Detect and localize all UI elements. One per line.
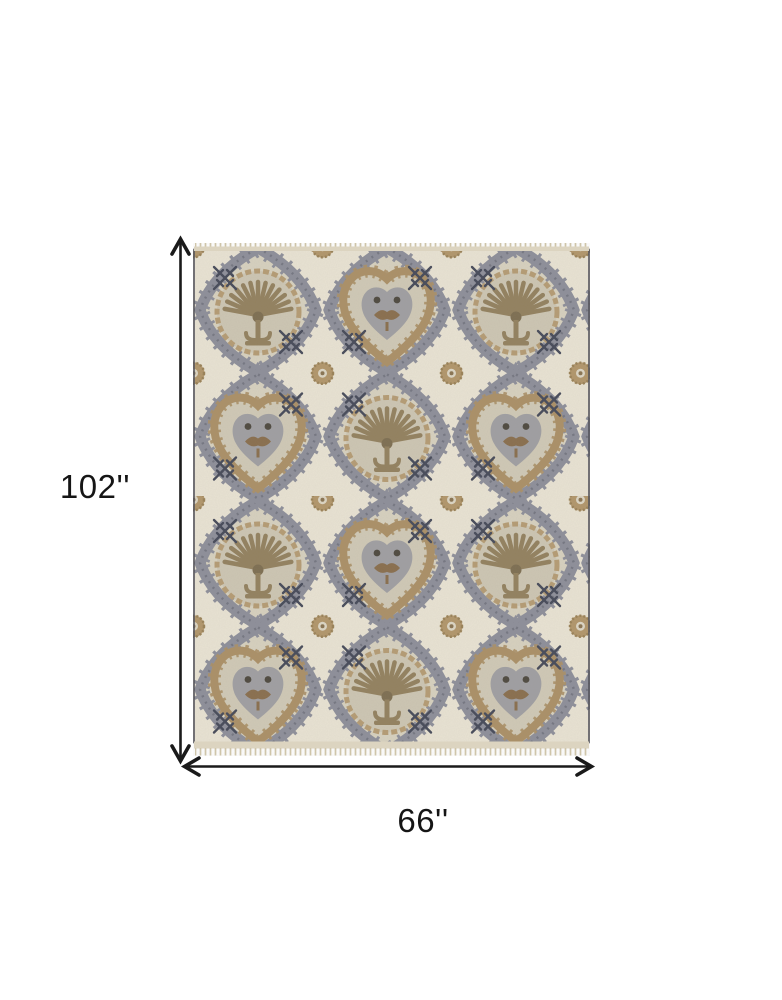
rug-image: [193, 243, 590, 756]
rug-fringe-bottom: [195, 748, 588, 756]
width-dimension-label: 66'': [348, 804, 498, 837]
height-dimension-label: 102'': [20, 470, 170, 503]
product-dimension-diagram: 102'' 66'': [0, 0, 782, 1000]
width-arrow: [185, 758, 592, 775]
height-arrow: [172, 239, 189, 761]
